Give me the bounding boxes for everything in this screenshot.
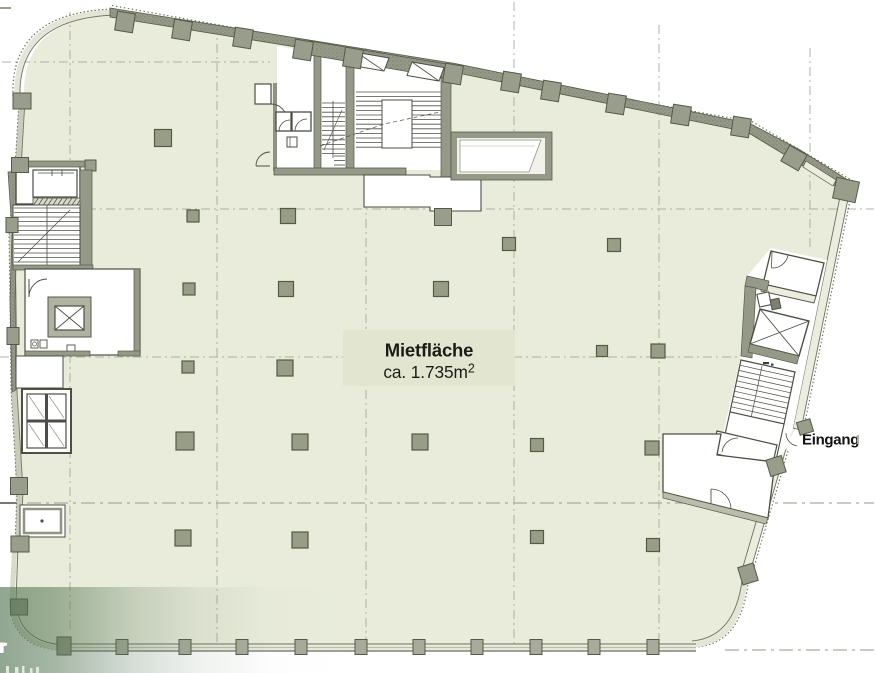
svg-text:Eingang: Eingang [802, 432, 859, 449]
svg-text:ca. 1.735m2: ca. 1.735m2 [383, 362, 475, 383]
svg-text:Mietfläche: Mietfläche [385, 340, 473, 361]
